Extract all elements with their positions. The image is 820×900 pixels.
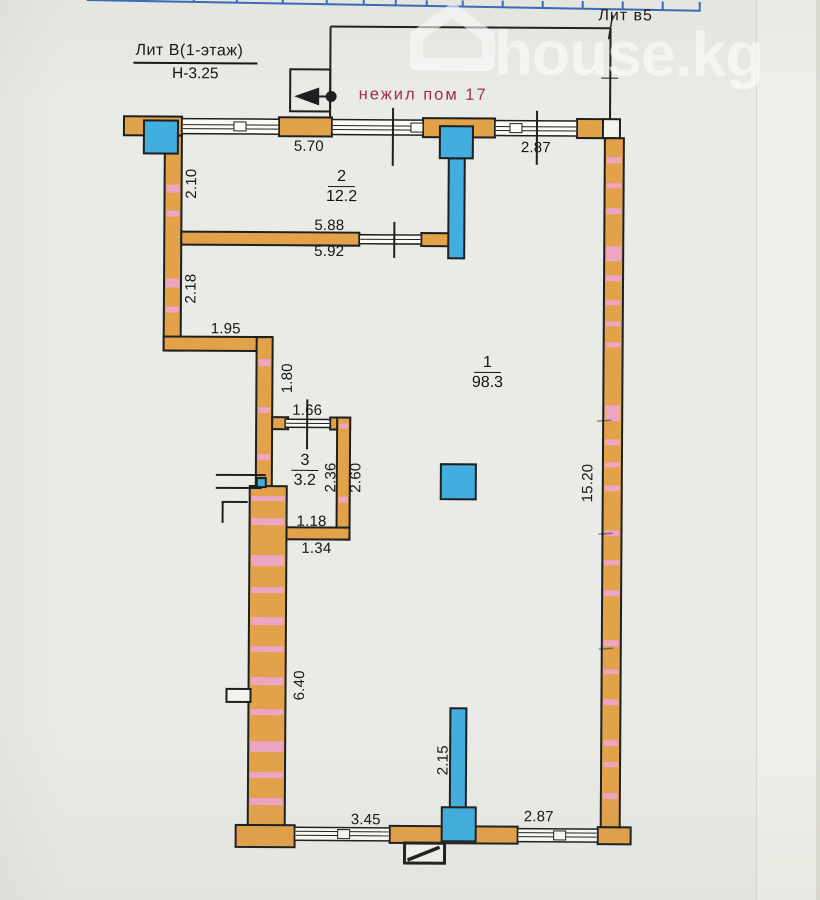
- dim-left-thick-wall: 6.40: [291, 670, 308, 700]
- house-icon: [416, 10, 488, 64]
- bottom-step-symbol: [404, 843, 444, 863]
- dim-jog-width: 1.95: [211, 320, 241, 337]
- room2-area: 12.2: [326, 187, 357, 206]
- floorplan-drawing: [0, 0, 820, 900]
- dim-jog-height: 1.80: [279, 363, 296, 393]
- room3-area: 3.2: [294, 471, 316, 490]
- dim-bottom-right-window: 2.87: [524, 808, 554, 825]
- dim-bottom-left-window: 3.45: [351, 811, 381, 828]
- entrance-door-arrow: [290, 69, 337, 111]
- room1-area: 98.3: [472, 373, 503, 392]
- dim-top-right-window: 2.87: [521, 139, 551, 156]
- annex-liter-label: Лит в5: [598, 7, 653, 25]
- room3-number: 3: [291, 453, 318, 471]
- building-height-label: Н-3.25: [172, 65, 219, 83]
- dim-room3-window: 1.66: [292, 402, 322, 419]
- dim-bottom-column: 2.15: [435, 745, 452, 775]
- walls: [120, 116, 635, 849]
- room2-label: 2 12.2: [326, 169, 357, 206]
- building-title: Лит В(1-этаж) Н-3.25: [133, 42, 257, 84]
- dim-room3-inner-width: 1.18: [297, 513, 327, 530]
- windows: [178, 119, 602, 843]
- room2-number: 2: [328, 169, 355, 187]
- room1-label: 1 98.3: [472, 355, 503, 392]
- dim-right-wall: 15.20: [579, 464, 596, 503]
- dim-left-lower: 2.18: [182, 274, 199, 304]
- dim-left-upper: 2.10: [183, 169, 200, 199]
- dim-top-left-window: 5.70: [294, 138, 324, 155]
- building-liter-label: Лит В(1-этаж): [133, 42, 257, 65]
- room3-label: 3 3.2: [291, 453, 318, 490]
- wall-hatching: [163, 155, 622, 808]
- floorplan: Лит В(1-этаж) Н-3.25 Лит в5 нежил пом 17…: [0, 0, 820, 900]
- dim-room3-outer-width: 1.34: [301, 540, 331, 557]
- scanned-floorplan-photo: Лит В(1-этаж) Н-3.25 Лит в5 нежил пом 17…: [0, 0, 820, 900]
- room1-number: 1: [474, 355, 501, 373]
- dim-divider-inner: 5.88: [314, 217, 344, 234]
- dim-room3-inner-height: 2.36: [322, 462, 339, 492]
- dim-room3-outer-height: 2.60: [347, 463, 364, 493]
- premise-label: нежил пом 17: [359, 85, 488, 105]
- dim-divider-outer: 5.92: [314, 243, 344, 260]
